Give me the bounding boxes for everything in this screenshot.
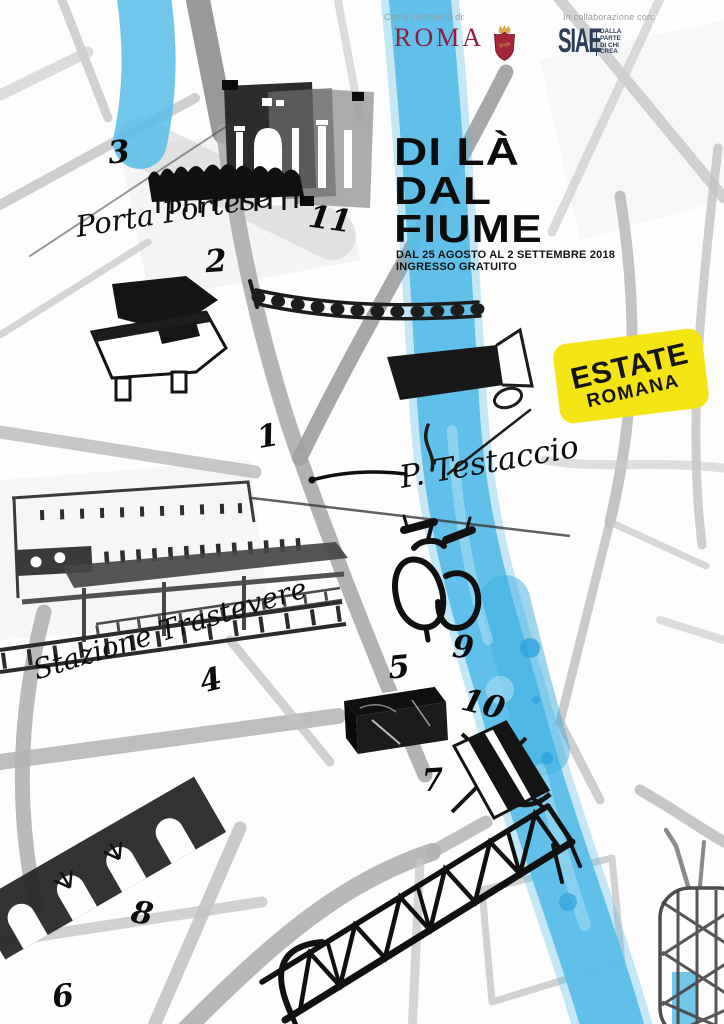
- contributor-block: Con il contributo di: ROMA SPQR: [384, 12, 518, 61]
- map-marker-2: 2: [204, 246, 228, 278]
- free-admission: INGRESSO GRATUITO: [396, 262, 615, 274]
- title-line-1: DI LÀ: [394, 134, 543, 173]
- event-dates: DAL 25 AGOSTO AL 2 SETTEMBRE 2018: [396, 250, 615, 262]
- page-title: DI LÀ DAL FIUME: [394, 134, 520, 250]
- map-marker-9: 9: [451, 632, 475, 664]
- subtitle: DAL 25 AGOSTO AL 2 SETTEMBRE 2018 INGRES…: [396, 250, 615, 273]
- spqr-shield-icon: SPQR: [491, 25, 518, 61]
- siae-logo: SIAE: [558, 28, 589, 56]
- collaboration-block: In collaborazione con: SIAE DALLA PARTE …: [558, 12, 655, 56]
- pointer-line: [309, 472, 407, 484]
- map-marker-11: 11: [306, 202, 353, 239]
- poster-root: Con il contributo di: ROMA SPQR In colla…: [0, 0, 724, 1024]
- stage-box: [344, 686, 448, 754]
- title-line-3: FIUME: [394, 211, 543, 250]
- siae-tagline-line: CREA: [600, 49, 621, 56]
- map-marker-7: 7: [421, 765, 445, 797]
- collaborazione-label: In collaborazione con:: [563, 12, 655, 22]
- title-line-2: DAL: [394, 173, 543, 212]
- map-marker-5: 5: [387, 651, 412, 684]
- roma-logo: ROMA: [394, 25, 484, 51]
- map-marker-3: 3: [107, 136, 132, 169]
- grand-piano: [92, 276, 226, 400]
- contributo-label: Con il contributo di:: [384, 12, 518, 22]
- gasometer: [660, 830, 724, 1024]
- map-marker-6: 6: [50, 980, 76, 1014]
